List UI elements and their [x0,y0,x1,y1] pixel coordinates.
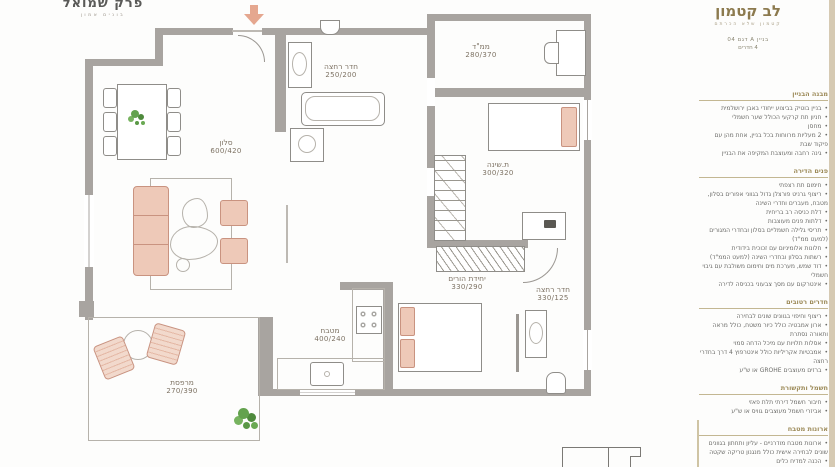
room-name: מרפסת [166,378,197,387]
spec-item: אינטרקום עם מסך צבעוני בכניסה לדירה [699,280,828,289]
toilet [546,372,566,394]
spec-item: מחסן [699,122,828,131]
room-dims: 400/240 [314,335,345,344]
spec-items: בניין בוטיק בביצוע ייחודי באבן ירושלמיתח… [699,104,828,158]
spec-section-title: פנים הדירה [699,167,828,178]
door-arc [238,35,265,62]
spec-item: 2 מעליות מרווחות בכל בניין, אחת מהן עם פ… [699,131,828,149]
room-dims: 270/390 [166,387,197,396]
glass-partition [286,205,288,263]
dining-chair [167,136,181,156]
project-subtitle: קטמון שלא הכרתם [693,22,803,27]
keyplan-line [562,447,640,448]
plant-icon [131,110,139,118]
wall [258,317,273,396]
wall [155,28,233,35]
spec-item: תריסי גלילה חשמליים בסלון ובחדרי המגורים… [699,226,828,244]
spec-section-title: ארונות מטבח [699,425,828,436]
sink-drain [324,371,330,377]
room-label-bath2: חדר רחצה 330/125 [536,285,570,303]
room-name: מטבח [314,326,345,335]
room-label-bedroom: ת.שינה 300/320 [482,160,513,178]
wall [275,33,286,132]
room-dims: 280/370 [465,51,496,60]
room-label-mamad: ממ"ד 280/370 [465,42,496,60]
window [583,100,592,140]
dining-chair [103,88,117,108]
entrance-arrow-head [244,14,264,25]
pillow [561,107,577,147]
plant-icon [238,408,249,419]
spec-item: חיבור חשמל דירתי תלת פאזי [699,398,828,407]
room-dims: 330/290 [448,283,486,292]
wall [85,59,93,320]
sink-basin [529,322,543,344]
building-model: בניין A דגם 04 [693,37,803,43]
entrance-arrow-icon [244,5,264,27]
keyplan-line [608,447,609,467]
bath2-partition [516,314,519,372]
dining-chair [167,88,181,108]
spec-item: ארון אמבטיה כולל כיור משטח, כולל מראה ות… [699,321,828,339]
room-label-master: יחידת הורים 330/290 [448,274,486,292]
specs-list: מבנה הבנייןבניין בוטיק בביצוע ייחודי באב… [699,90,828,467]
room-label-kitchen: מטבח 400/240 [314,326,345,344]
bathtub-inner [305,96,380,121]
dining-chair [167,112,181,132]
spec-item: חימום תת רצפתי [699,181,828,190]
sofa [133,186,169,276]
rooms-count: 4 חדרים [693,45,803,51]
wall [432,88,591,97]
door-arc [523,248,558,283]
spec-item: חניון תת קרקעי הכולל שער חשמלי [699,113,828,122]
kitchen-window [300,390,355,395]
spec-item: אמבטיות אקריליות כולל אינטרפוץ 4 דרך בחד… [699,348,828,366]
room-dims: 330/125 [536,294,570,303]
developer-tagline: בונים אמון [58,13,148,18]
keyplan-line [630,456,641,457]
spec-item: ארונות מטבח מודרניים - עליון ותחתון בגוו… [699,439,828,457]
room-label-terrace: מרפסת 270/390 [166,378,197,396]
project-title: לב קטמון [693,2,803,20]
washer-drum [298,135,316,153]
project-title-block: לב קטמון קטמון שלא הכרתם בניין A דגם 04 … [693,2,803,51]
keyplan-line [640,447,641,456]
room-name: ממ"ד [465,42,496,51]
entrance-threshold [232,30,262,32]
spec-item: ריצוף וחיפוי בגוונים שונים לבחירה [699,312,828,321]
dining-chair [103,136,117,156]
wall [85,59,162,66]
spec-section: מבנה הבנייןבניין בוטיק בביצוע ייחודי באב… [699,90,828,158]
window [84,195,94,267]
wardrobe [434,155,466,241]
dining-table [117,84,167,160]
page-edge-strip [829,0,835,467]
pillow [400,339,415,368]
stove [356,306,382,334]
room-name: יחידת הורים [448,274,486,283]
spec-item: דלתות פנים מעוצבות [699,217,828,226]
rug-blob [182,198,208,228]
spec-item: חלונות אלומיניום עם זכוכית בידודית [699,244,828,253]
armchair [220,238,248,264]
floor-lamp [176,258,190,272]
spec-item: ברזים מעוצבים GROHE או ש"ע [699,366,828,375]
spec-item: הכנה למדיח כלים [699,457,828,466]
toilet [320,20,340,35]
wall [427,14,591,21]
keyplan-line [562,447,563,467]
armchair [220,200,248,226]
window [583,330,592,370]
room-label-bath1: חדר רחצה 250/200 [324,62,358,80]
spec-section-title: חדרים רטובים [699,298,828,309]
dining-chair [103,112,117,132]
wall [79,301,94,317]
room-name: סלון [210,138,241,147]
pillow [400,307,415,336]
door-opening [427,78,435,106]
spec-section: חשמל ותקשורתחיבור חשמל דירתי תלת פאזיאבי… [699,384,828,416]
room-dims: 300/320 [482,169,513,178]
spec-item: דוד שמש, מערכת מים וחימום משולבת עם גיבו… [699,262,828,280]
room-dims: 250/200 [324,71,358,80]
spec-item: בניין בוטיק בביצוע ייחודי באבן ירושלמית [699,104,828,113]
spec-section: פנים הדירהחימום תת רצפתיריצוף גרניט פורצ… [699,167,828,289]
closet [436,246,525,272]
sink-basin [292,52,307,76]
wall [262,28,434,35]
spec-items: ארונות מטבח מודרניים - עליון ותחתון בגוו… [699,439,828,467]
keyplan-line [630,456,631,467]
spec-item: דלת כניסה רב בריחית [699,208,828,217]
spec-section-title: חשמל ותקשורת [699,384,828,395]
room-name: חדר רחצה [324,62,358,71]
room-dims: 600/420 [210,147,241,156]
spec-item: אביזרי חשמל מעוצבים גוויס או ש"ע [699,407,828,416]
typewriter-icon [544,220,556,228]
floorplan-page: פרק שמואל בונים אמון לב קטמון קטמון שלא … [0,0,835,467]
room-label-salon: סלון 600/420 [210,138,241,156]
room-name: ת.שינה [482,160,513,169]
spec-section: חדרים רטוביםריצוף וחיפוי בגוונים שונים ל… [699,298,828,375]
spec-item: גינה רחבה ומעוצבת המקיפה את הבניין [699,149,828,158]
spec-item: ריצוף גרניט פורצלן גדול בגווני אפורים בס… [699,190,828,208]
spec-section: ארונות מטבחארונות מטבח מודרניים - עליון … [699,425,828,467]
room-name: חדר רחצה [536,285,570,294]
developer-logo: פרק שמואל בונים אמון [58,0,148,18]
desk-chair [544,42,559,64]
spec-items: חיבור חשמל דירתי תלת פאזיאביזרי חשמל מעו… [699,398,828,416]
entrance-arrow-stem [250,5,258,14]
spec-item: רשתות בסלון ובחדרי השינה (למעט הממ"ד) [699,253,828,262]
desk [556,30,586,76]
developer-name: פרק שמואל [58,0,148,11]
spec-section-title: מבנה הבניין [699,90,828,101]
spec-items: חימום תת רצפתיריצוף גרניט פורצלן גדול בג… [699,181,828,289]
spec-item: אסלות תלויות עם מיכל הדחה סמוי [699,339,828,348]
spec-items: ריצוף וחיפוי בגוונים שונים לבחירהארון אמ… [699,312,828,375]
